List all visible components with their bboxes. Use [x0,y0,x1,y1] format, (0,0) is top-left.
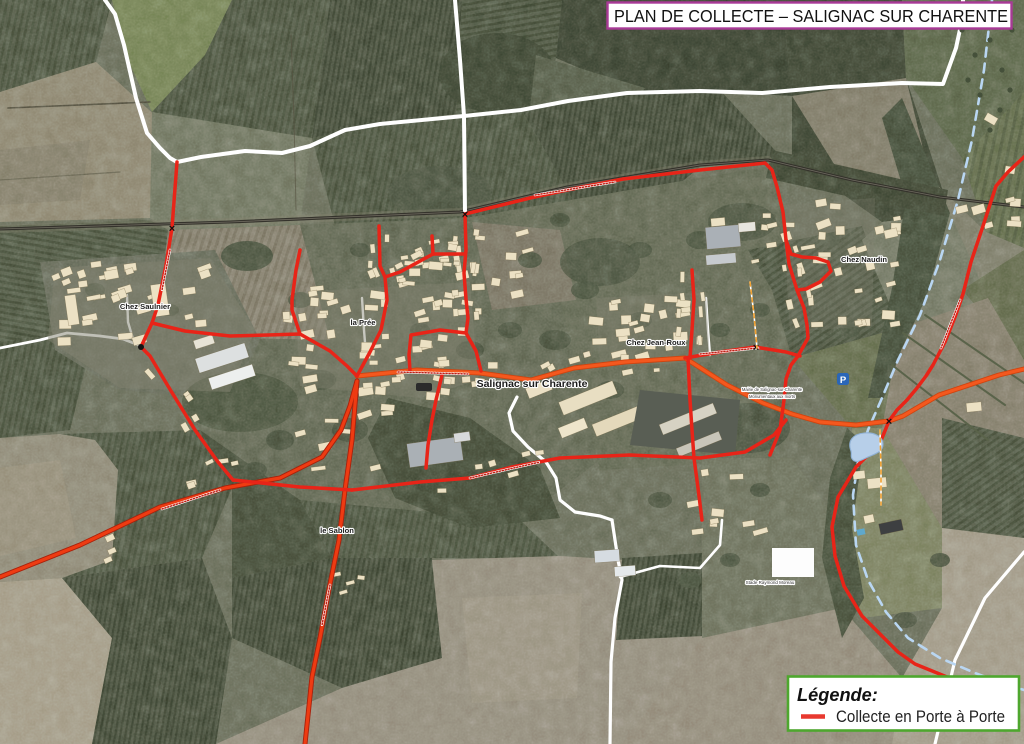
svg-text:Chez Saulnier: Chez Saulnier [120,302,170,311]
svg-text:Légende:: Légende: [797,685,878,705]
svg-text:PLAN DE COLLECTE – SALIGNAC SU: PLAN DE COLLECTE – SALIGNAC SUR CHARENTE [614,6,1008,26]
svg-text:Chez Naudin: Chez Naudin [841,255,887,264]
svg-text:la Prée: la Prée [351,318,376,327]
svg-text:Mairie de Salignac-sur-Charent: Mairie de Salignac-sur-Charente [742,387,803,392]
svg-text:Chez Jean-Roux: Chez Jean-Roux [626,338,686,347]
svg-text:Stade Raymond Moreau: Stade Raymond Moreau [746,580,795,585]
svg-text:Collecte en Porte à Porte: Collecte en Porte à Porte [836,708,1005,726]
svg-text:P: P [840,375,847,386]
svg-text:×: × [169,223,175,235]
svg-text:Salignac sur Charente: Salignac sur Charente [477,378,588,390]
svg-text:Monumentaux aux morts: Monumentaux aux morts [749,394,795,399]
svg-text:×: × [886,416,892,428]
svg-text:×: × [462,209,468,221]
svg-text:le Sablon: le Sablon [320,526,354,535]
